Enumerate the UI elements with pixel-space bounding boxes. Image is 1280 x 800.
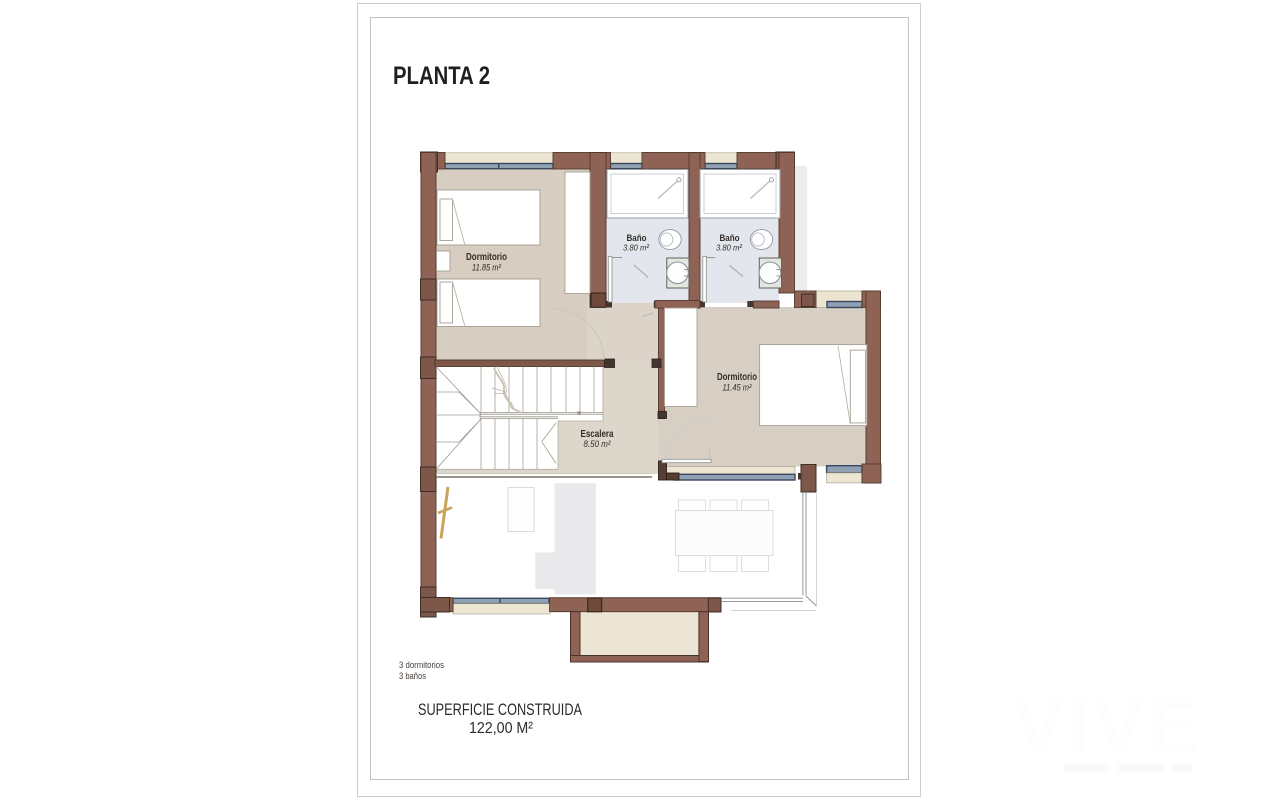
svg-text:VIVE: VIVE <box>1013 683 1202 768</box>
svg-text:3.80 m²: 3.80 m² <box>716 243 743 253</box>
svg-text:3 baños: 3 baños <box>399 671 426 682</box>
svg-text:122,00 M²: 122,00 M² <box>469 720 534 737</box>
svg-text:Dormitorio: Dormitorio <box>717 371 757 383</box>
svg-text:SUPERFICIE CONSTRUIDA: SUPERFICIE CONSTRUIDA <box>418 701 582 719</box>
svg-text:11.85 m²: 11.85 m² <box>472 263 502 273</box>
svg-text:8.50 m²: 8.50 m² <box>584 439 612 449</box>
svg-text:3 dormitorios: 3 dormitorios <box>399 660 444 671</box>
svg-text:PLANTA 2: PLANTA 2 <box>393 62 490 90</box>
svg-text:Dormitorio: Dormitorio <box>466 251 507 263</box>
svg-text:3.80 m²: 3.80 m² <box>623 243 650 253</box>
svg-text:11.45 m²: 11.45 m² <box>723 383 753 393</box>
